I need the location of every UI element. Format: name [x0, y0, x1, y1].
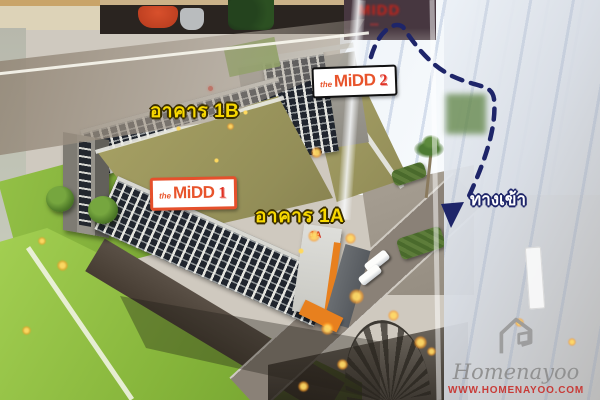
bokeh-light — [22, 326, 31, 335]
midd2-logo: the MiDD 2 — [311, 65, 397, 99]
homenayoo-house-icon — [487, 315, 545, 357]
lit-window — [243, 110, 248, 115]
top-shelf-panel — [0, 0, 110, 30]
foliage — [228, 0, 274, 30]
midd1-logo-name: MiDD — [173, 183, 215, 204]
midd2-logo-number: 2 — [379, 72, 388, 90]
bokeh-light — [57, 260, 68, 271]
midd1-logo-number: 1 — [218, 184, 226, 202]
label-entrance: ทางเข้า — [470, 186, 526, 213]
watermark-url: WWW.HOMENAYOO.COM — [440, 385, 592, 396]
bokeh-light — [311, 147, 322, 158]
showroom-photo: MIDD ▪▪▪ 1A — [0, 0, 600, 400]
midd1-logo: the MiDD 1 — [150, 176, 238, 211]
gray-chair — [180, 8, 204, 30]
bokeh-light — [349, 289, 364, 304]
watermark-brand: Homenayoo — [440, 362, 592, 383]
bokeh-light — [38, 237, 46, 245]
tree — [46, 186, 74, 212]
watermark: Homenayoo WWW.HOMENAYOO.COM — [440, 315, 592, 396]
red-chair — [138, 6, 178, 28]
bokeh-light — [345, 233, 356, 244]
midd2-logo-name: MiDD — [334, 70, 376, 91]
bokeh-light — [337, 359, 348, 370]
lit-window — [214, 158, 219, 163]
bokeh-light — [308, 230, 320, 242]
lit-window — [176, 126, 181, 131]
label-building-1a: อาคาร 1A — [255, 201, 344, 231]
midd1-logo-prefix: the — [159, 191, 171, 200]
palm-tree — [412, 138, 446, 200]
bokeh-light — [298, 381, 309, 392]
lit-window — [298, 248, 304, 254]
bokeh-light — [388, 310, 399, 321]
tree — [88, 196, 118, 224]
bokeh-light — [321, 322, 334, 335]
grass-through-glass — [446, 94, 486, 134]
midd2-logo-prefix: the — [320, 80, 332, 89]
label-building-1b: อาคาร 1B — [150, 96, 239, 126]
bokeh-light — [427, 347, 436, 356]
bokeh-light — [414, 336, 427, 349]
